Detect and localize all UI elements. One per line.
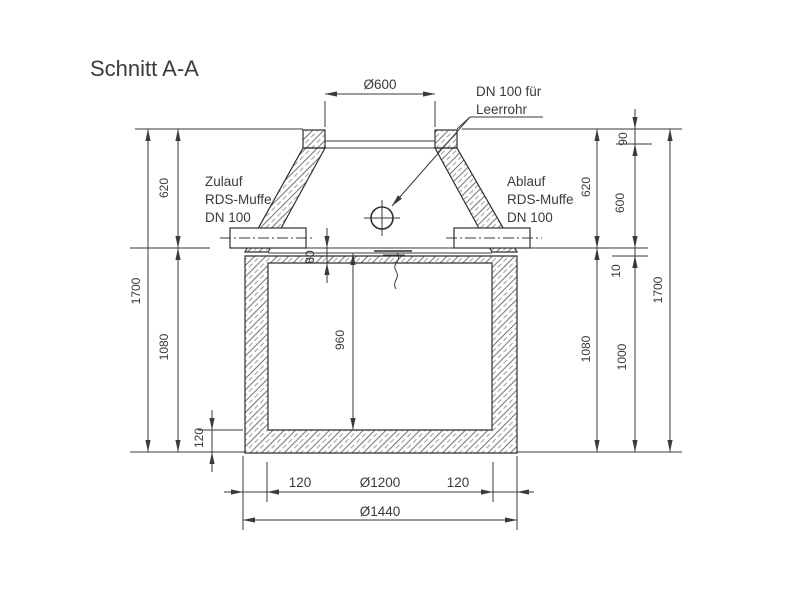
dim-top-opening: Ø600 [363,77,396,92]
base-element [245,256,517,453]
dim-left-upper: 620 [157,178,171,198]
dim-right-joint: 10 [609,264,623,278]
dim-bottom-outer-dia: Ø1440 [360,504,401,519]
ablauf-label-line3: DN 100 [507,210,553,225]
cone-ring-block-left [303,130,325,148]
dim-bottom-wall-right: 120 [447,475,470,490]
ablauf-label: Ablauf RDS-Muffe DN 100 [507,174,574,225]
dim-right-cone: 600 [613,193,627,213]
drawing-page: Schnitt A-A DN 100 für Leerrohr Zulauf R… [0,0,800,600]
zulauf-label-line1: Zulauf [205,174,243,189]
dim-left-lower: 1080 [157,333,171,360]
section-drawing: Schnitt A-A DN 100 für Leerrohr Zulauf R… [0,0,800,600]
dim-left-base-slab: 120 [192,428,206,448]
dim-right-total: 1700 [651,276,665,303]
ablauf-label-line1: Ablauf [507,174,546,189]
zulauf-label-line3: DN 100 [205,210,251,225]
ablauf-label-line2: RDS-Muffe [507,192,574,207]
dim-inner-cover: 80 [303,250,317,264]
drawing-title: Schnitt A-A [90,56,199,81]
outlet-pipe [446,228,542,248]
leerrohr-label-line2: Leerrohr [476,102,528,117]
leerrohr-label: DN 100 für Leerrohr [476,84,542,117]
cone-ring-block-right [435,130,457,148]
inlet-pipe [220,228,314,248]
dim-bottom-wall-left: 120 [289,475,312,490]
dim-right-upper: 620 [579,177,593,197]
extension-lines [130,101,682,530]
dim-right-ring: 90 [616,132,630,146]
dimension-lines [148,94,670,520]
leerrohr-label-line1: DN 100 für [476,84,542,99]
dim-inner-height: 960 [333,330,347,350]
shaft-structure [220,130,542,453]
dim-right-base: 1000 [615,343,629,370]
dim-left-total: 1700 [129,277,143,304]
neck-course-lines [325,141,435,148]
leerrohr-opening-symbol [364,200,400,236]
dim-right-lower: 1080 [579,335,593,362]
zulauf-label-line2: RDS-Muffe [205,192,272,207]
zulauf-label: Zulauf RDS-Muffe DN 100 [205,174,272,225]
dim-bottom-inner-dia: Ø1200 [360,475,401,490]
